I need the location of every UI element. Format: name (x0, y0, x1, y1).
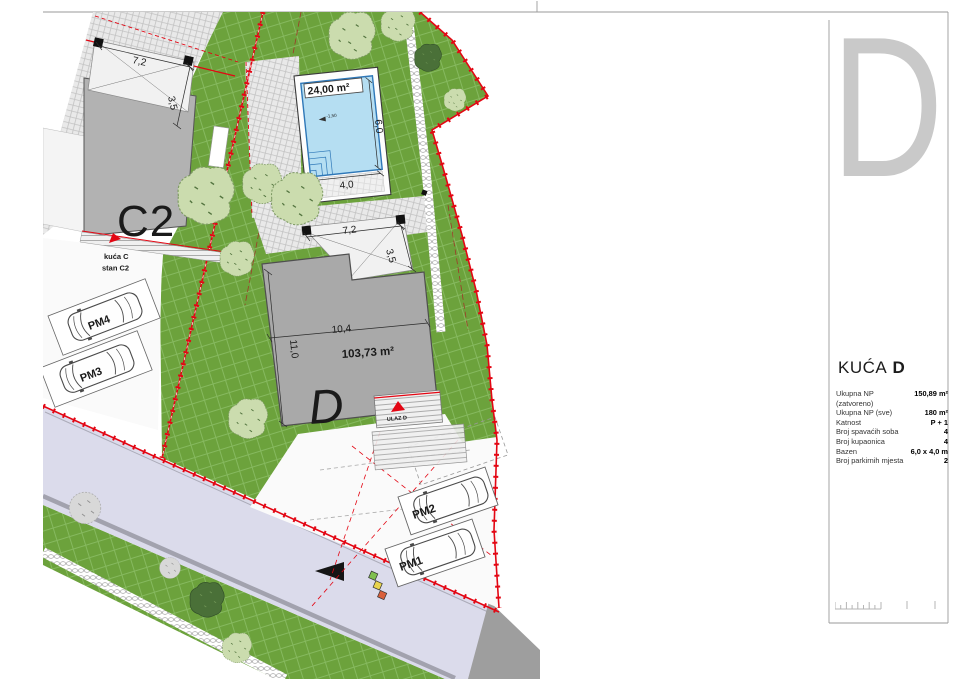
spec-value: 150,89 m² (914, 389, 948, 408)
spec-row: Broj spavaćih soba 4 (836, 427, 948, 437)
sheet-watermark: D (831, 8, 944, 208)
spec-value: 6,0 x 4,0 m (911, 447, 948, 457)
sheet-title: KUĆA D (838, 358, 905, 378)
spec-value: 4 (944, 427, 948, 437)
spec-row: Katnost P + 1 (836, 418, 948, 428)
dim-label: 10,4 (331, 323, 352, 336)
house-c-note: kuća C (104, 252, 129, 261)
spec-label: Broj spavaćih soba (836, 427, 898, 437)
spec-value: 2 (944, 456, 948, 466)
spec-label: Broj parkirnih mjesta (836, 456, 903, 466)
site-plan: 7,2 3,5 C2 kuća C stan C2 PM4 PM3 (0, 0, 960, 679)
spec-table: Ukupna NP (zatvoreno) 150,89 m² Ukupna N… (836, 389, 948, 466)
spec-row: Broj kupaonica 4 (836, 437, 948, 447)
house-d-label: D (307, 380, 345, 435)
dim-label: 4,0 (339, 179, 354, 191)
house-c-note: stan C2 (102, 264, 129, 273)
sheet-title-prefix: KUĆA (838, 358, 887, 377)
spec-row: Ukupna NP (sve) 180 m² (836, 408, 948, 418)
entrance-stairs-d (374, 390, 443, 428)
spec-value: 4 (944, 437, 948, 447)
dim-label: 7,2 (342, 224, 358, 237)
sheet-title-letter: D (892, 358, 905, 377)
post (302, 225, 312, 235)
scale-bar (835, 597, 945, 613)
spec-row: Ukupna NP (zatvoreno) 150,89 m² (836, 389, 948, 408)
spec-label: Bazen (836, 447, 857, 457)
spec-label: Katnost (836, 418, 861, 428)
dim-label: 11,0 (287, 339, 300, 359)
spec-label: Ukupna NP (zatvoreno) (836, 389, 910, 408)
dim-label: 6,0 (372, 119, 384, 134)
spec-row: Broj parkirnih mjesta 2 (836, 456, 948, 466)
spec-value: 180 m² (925, 408, 948, 418)
drawing-sheet: 7,2 3,5 C2 kuća C stan C2 PM4 PM3 (0, 0, 960, 679)
spec-label: Broj kupaonica (836, 437, 885, 447)
spec-value: P + 1 (931, 418, 948, 428)
garden-steps (372, 424, 467, 470)
spec-row: Bazen 6,0 x 4,0 m (836, 447, 948, 457)
spec-label: Ukupna NP (sve) (836, 408, 892, 418)
